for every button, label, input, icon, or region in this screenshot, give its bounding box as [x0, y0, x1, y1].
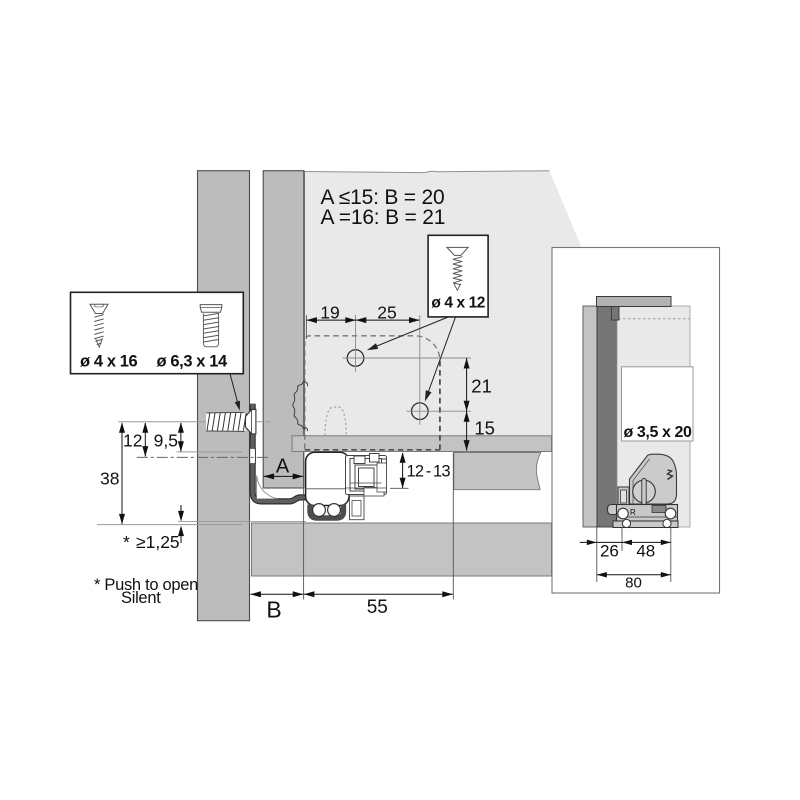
svg-text:12 - 13: 12 - 13: [407, 462, 451, 480]
svg-text:80: 80: [625, 575, 642, 592]
svg-text:R: R: [630, 508, 636, 517]
svg-text:≥1,25: ≥1,25: [136, 532, 180, 552]
svg-text:A: A: [276, 456, 290, 478]
svg-text:A =16: B = 21: A =16: B = 21: [321, 206, 446, 229]
svg-text:12: 12: [123, 431, 142, 451]
svg-text:19: 19: [320, 302, 339, 322]
svg-text:*: *: [123, 532, 130, 552]
svg-text:Silent: Silent: [121, 589, 161, 607]
svg-text:55: 55: [367, 597, 388, 618]
svg-text:9,5: 9,5: [154, 431, 178, 451]
svg-text:38: 38: [100, 469, 119, 489]
svg-text:25: 25: [377, 302, 396, 322]
svg-text:B: B: [266, 597, 281, 623]
svg-text:26: 26: [600, 542, 619, 561]
svg-text:ø 4 x 12: ø 4 x 12: [431, 294, 485, 311]
svg-text:21: 21: [471, 376, 492, 397]
svg-text:48: 48: [636, 542, 655, 561]
svg-text:15: 15: [474, 417, 495, 438]
svg-text:ø 3,5 x 20: ø 3,5 x 20: [624, 424, 693, 441]
svg-text:ø 6,3 x 14: ø 6,3 x 14: [157, 352, 229, 370]
svg-text:ø 4 x 16: ø 4 x 16: [80, 352, 138, 370]
